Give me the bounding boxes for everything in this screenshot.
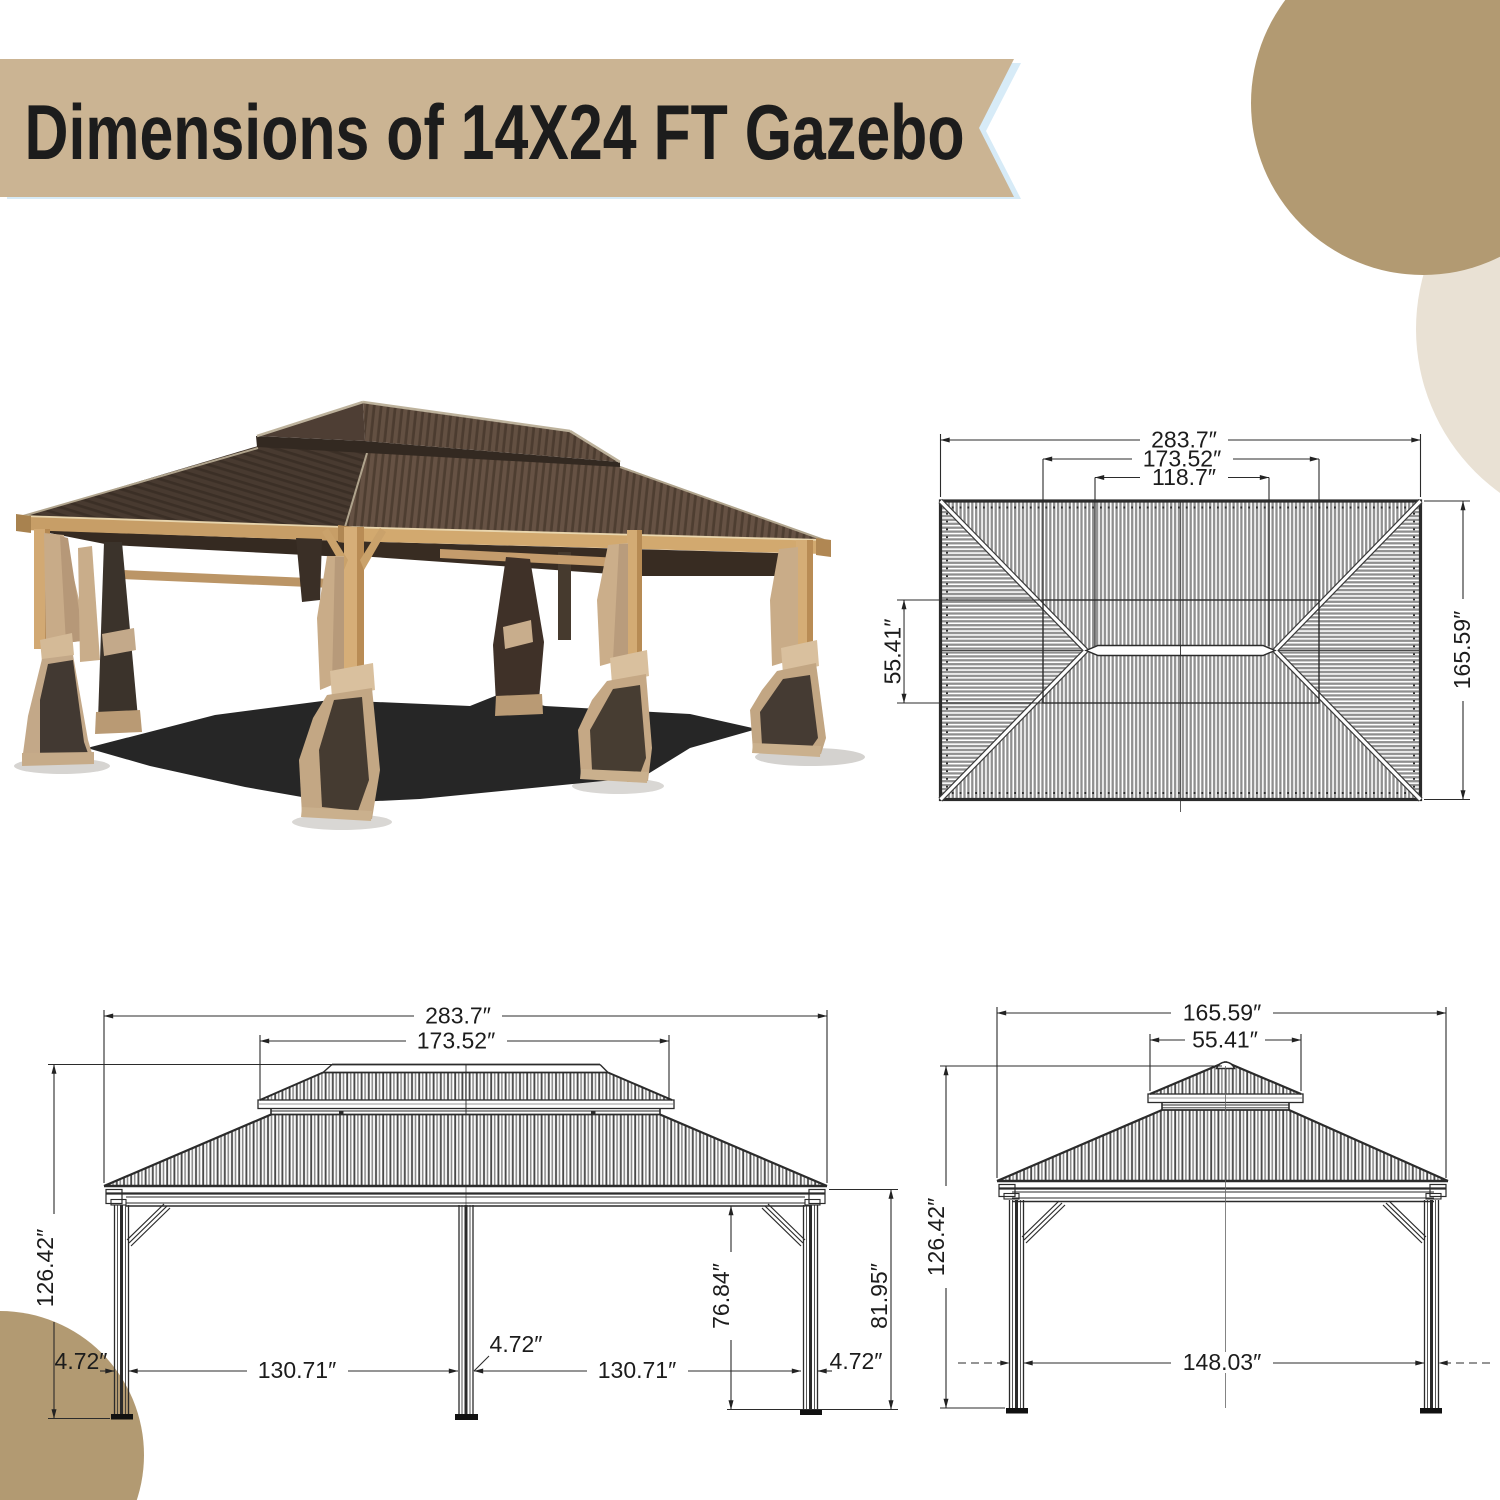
svg-text:148.03″: 148.03″ bbox=[1183, 1349, 1262, 1375]
svg-text:4.72″: 4.72″ bbox=[55, 1348, 108, 1374]
svg-text:118.7″: 118.7″ bbox=[1152, 464, 1216, 490]
svg-text:126.42″: 126.42″ bbox=[32, 1229, 58, 1308]
svg-text:126.42″: 126.42″ bbox=[923, 1198, 949, 1277]
svg-text:76.84″: 76.84″ bbox=[708, 1263, 734, 1329]
svg-text:283.7″: 283.7″ bbox=[425, 1003, 491, 1029]
svg-text:173.52″: 173.52″ bbox=[417, 1028, 496, 1054]
svg-text:55.41″: 55.41″ bbox=[880, 619, 906, 685]
svg-text:55.41″: 55.41″ bbox=[1192, 1027, 1258, 1053]
svg-text:Dimensions of 14X24 FT Gazebo: Dimensions of 14X24 FT Gazebo bbox=[25, 88, 965, 176]
svg-text:165.59″: 165.59″ bbox=[1449, 611, 1475, 690]
svg-text:165.59″: 165.59″ bbox=[1183, 1000, 1262, 1026]
svg-text:81.95″: 81.95″ bbox=[866, 1263, 892, 1329]
svg-text:4.72″: 4.72″ bbox=[830, 1348, 883, 1374]
svg-text:130.71″: 130.71″ bbox=[598, 1357, 677, 1383]
svg-text:130.71″: 130.71″ bbox=[258, 1357, 337, 1383]
svg-text:4.72″: 4.72″ bbox=[490, 1331, 543, 1357]
